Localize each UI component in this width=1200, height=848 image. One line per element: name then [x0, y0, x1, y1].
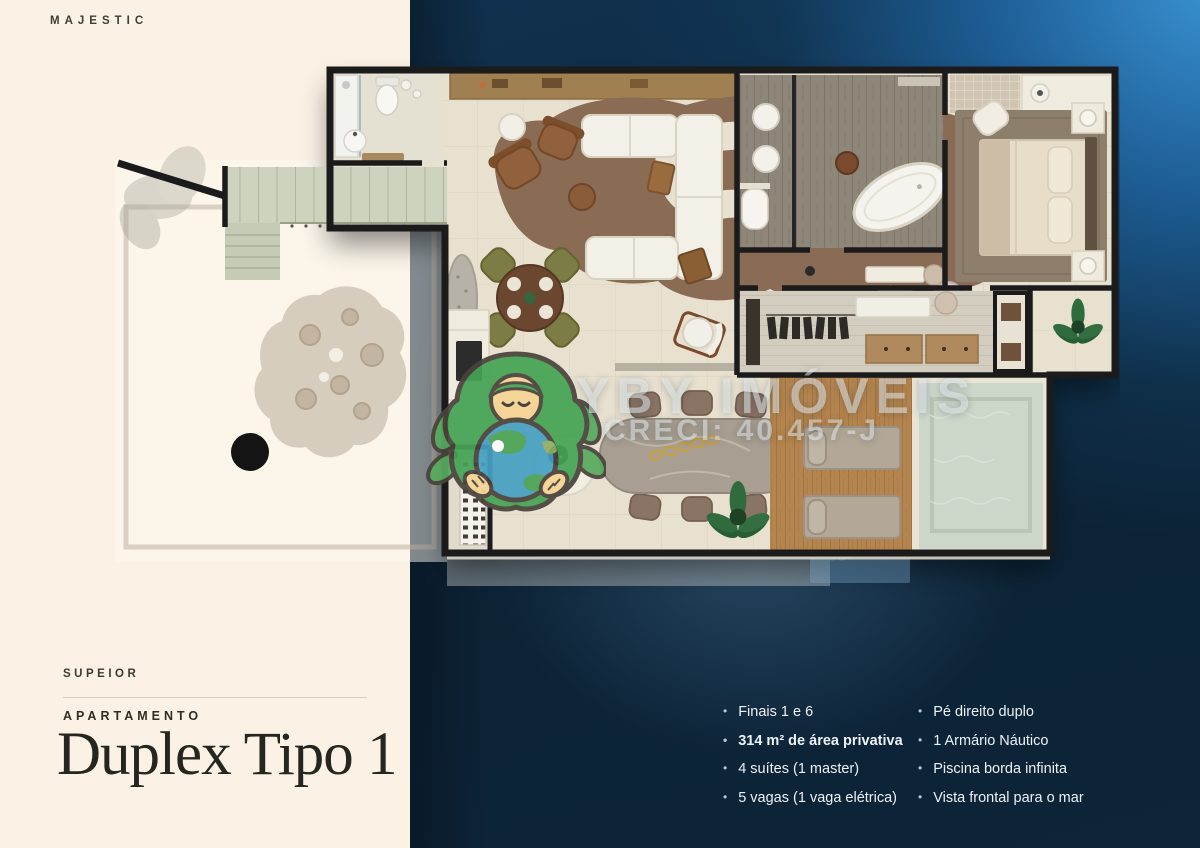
marketing-slide: YBY IMÓVEIS CRECI: 40.457-J MAJESTIC SUP… — [0, 0, 1200, 848]
brand-logo: MAJESTIC — [50, 15, 148, 27]
bath-bench — [362, 153, 404, 161]
sink — [753, 146, 779, 172]
feature-item: Piscina borda infinita — [918, 755, 1084, 784]
headboard — [1085, 137, 1097, 257]
features-column-2: Pé direito duplo 1 Armário Náutico Pisci… — [918, 698, 1084, 812]
bed — [980, 137, 1097, 257]
bath-stool — [836, 152, 858, 174]
feature-item: Finais 1 e 6 — [723, 698, 903, 727]
master-bedroom — [933, 75, 1112, 312]
drawer-cabinet — [866, 335, 978, 363]
column-dot — [231, 433, 269, 471]
lamp — [1080, 258, 1096, 274]
unit-eyebrow: SUPEIOR — [63, 668, 139, 680]
closet — [740, 291, 1027, 372]
island-counter — [856, 297, 930, 317]
floor-plan — [110, 55, 1120, 600]
round-side-table — [499, 114, 525, 140]
ottoman — [569, 184, 595, 210]
small-bathroom — [333, 73, 443, 163]
sink — [753, 104, 779, 130]
wood-tray — [647, 161, 675, 195]
pillow — [1048, 147, 1072, 193]
sun-lounger — [804, 496, 900, 538]
seat-cabinet — [995, 293, 1027, 371]
master-bathroom — [739, 75, 957, 248]
shoe-rack — [746, 299, 760, 365]
watermark-license: CRECI: 40.457-J — [604, 414, 879, 448]
toilet — [376, 77, 399, 115]
pillow — [1048, 197, 1072, 243]
sideboard — [450, 73, 738, 99]
feature-item: 5 vagas (1 vaga elétrica) — [723, 784, 903, 813]
feature-item: 314 m² de área privativa — [723, 727, 903, 756]
lamp — [1080, 110, 1096, 126]
pouf — [935, 292, 957, 314]
feature-item: 1 Armário Náutico — [918, 727, 1084, 756]
feature-item: Vista frontal para o mar — [918, 784, 1084, 813]
divider — [63, 697, 367, 698]
features-column-1: Finais 1 e 6 314 m² de área privativa 4 … — [723, 698, 903, 812]
console-table — [866, 267, 924, 282]
stool — [924, 265, 944, 285]
feature-item: 4 suítes (1 master) — [723, 755, 903, 784]
feature-item: Pé direito duplo — [918, 698, 1084, 727]
page-title: Duplex Tipo 1 — [57, 720, 397, 790]
